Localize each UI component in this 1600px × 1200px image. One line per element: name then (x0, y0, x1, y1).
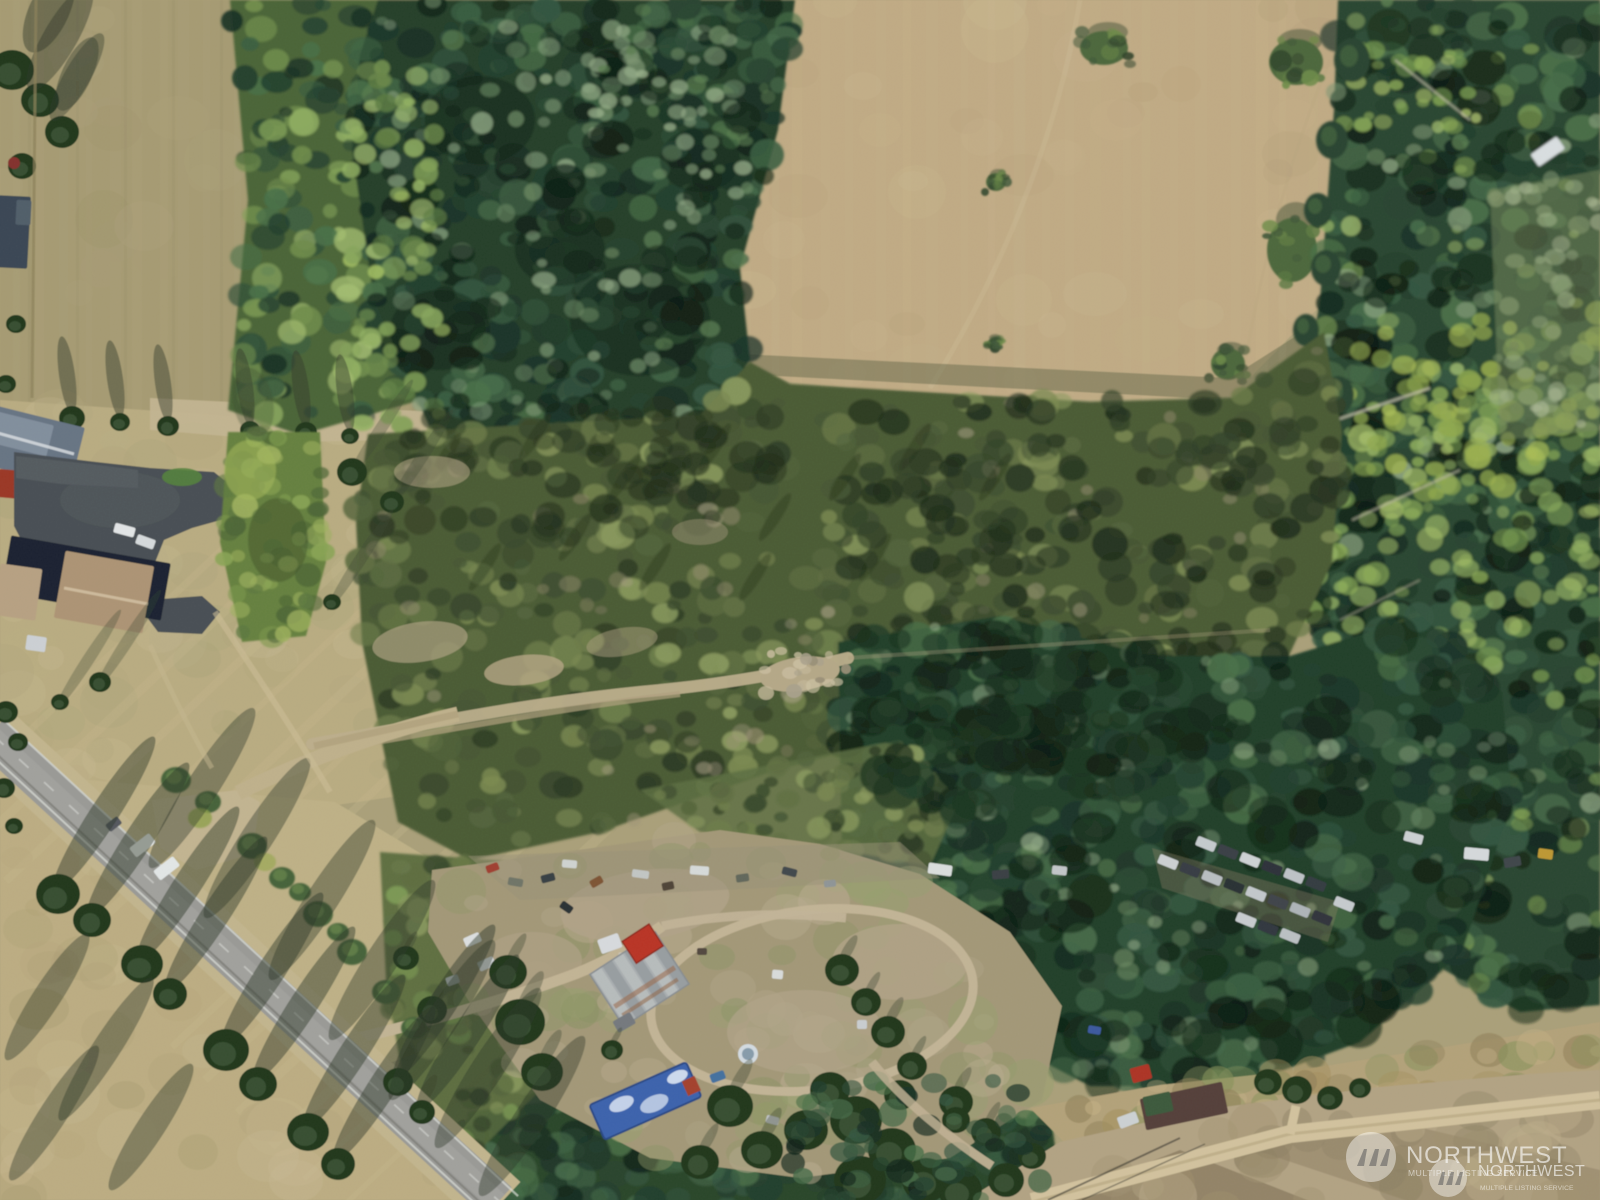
svg-text:MULTIPLE LISTING SERVICE: MULTIPLE LISTING SERVICE (1480, 1185, 1574, 1192)
svg-text:NORTHWEST: NORTHWEST (1478, 1163, 1585, 1180)
